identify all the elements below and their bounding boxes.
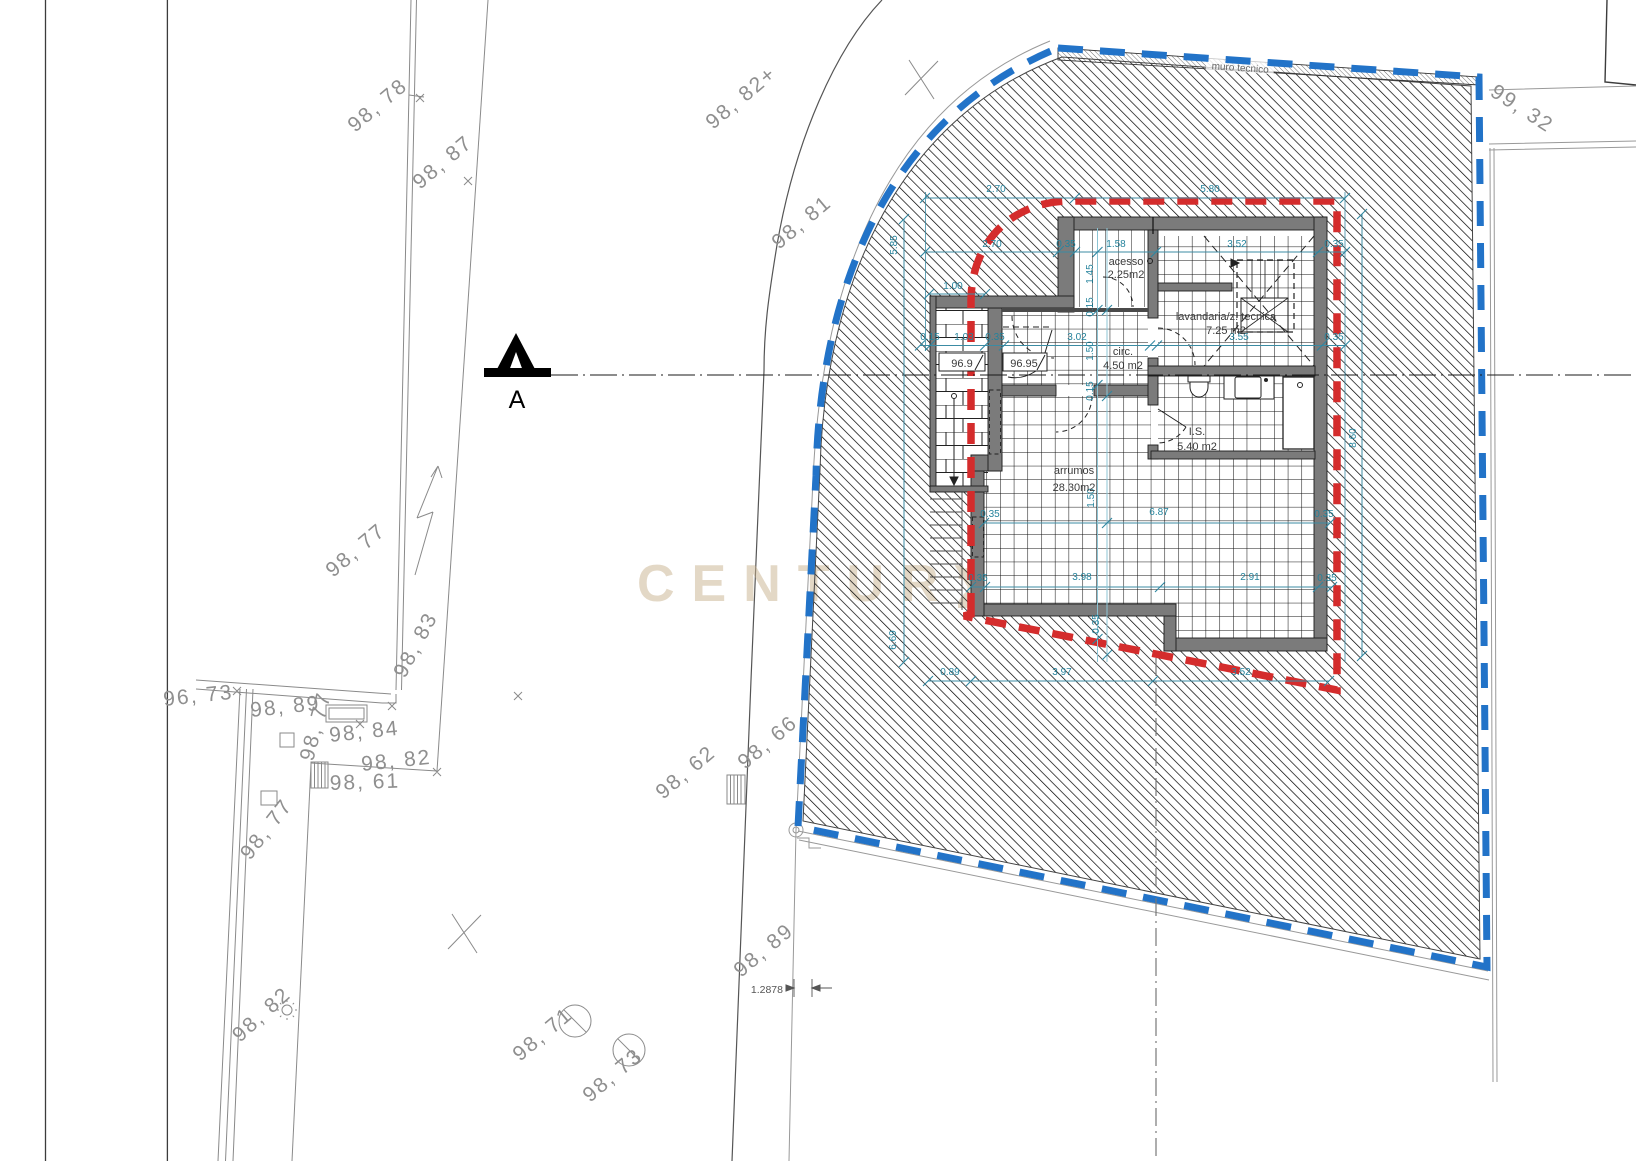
svg-text:0.15: 0.15: [920, 332, 940, 343]
svg-text:0.35: 0.35: [1056, 239, 1076, 250]
svg-text:1.00: 1.00: [943, 281, 963, 292]
svg-text:0.35: 0.35: [985, 332, 1005, 343]
svg-text:arrumos: arrumos: [1054, 465, 1095, 477]
svg-text:5.80: 5.80: [1200, 184, 1220, 195]
svg-text:0.35: 0.35: [968, 573, 988, 584]
svg-text:0.35: 0.35: [1324, 332, 1344, 343]
svg-text:0.35: 0.35: [1314, 509, 1334, 520]
svg-text:3.52: 3.52: [1231, 667, 1251, 678]
svg-text:28.30m2: 28.30m2: [1053, 482, 1096, 494]
svg-text:3.52: 3.52: [1227, 239, 1247, 250]
svg-text:acesso: acesso: [1109, 256, 1144, 268]
svg-text:1.45: 1.45: [1085, 264, 1096, 284]
svg-text:2.70: 2.70: [986, 184, 1006, 195]
svg-text:0.15: 0.15: [1085, 297, 1096, 317]
svg-text:circ.: circ.: [1113, 346, 1133, 358]
svg-text:0.89: 0.89: [940, 667, 960, 678]
svg-text:5.40 m2: 5.40 m2: [1177, 441, 1217, 453]
svg-text:0.35: 0.35: [1091, 614, 1102, 634]
svg-text:2.70: 2.70: [982, 239, 1002, 250]
svg-text:3.98: 3.98: [1072, 572, 1092, 583]
svg-text:6.69: 6.69: [888, 630, 899, 650]
svg-text:2.91: 2.91: [1240, 572, 1260, 583]
svg-text:8.60: 8.60: [1348, 428, 1359, 448]
svg-text:1.03: 1.03: [954, 332, 974, 343]
svg-text:4.50 m2: 4.50 m2: [1103, 360, 1143, 372]
svg-text:5.85: 5.85: [889, 235, 900, 255]
svg-text:6.87: 6.87: [1149, 507, 1169, 518]
svg-text:1.50: 1.50: [1085, 341, 1096, 361]
svg-text:I.S.: I.S.: [1189, 426, 1206, 438]
svg-text:1.2878: 1.2878: [751, 984, 783, 996]
svg-text:0.35: 0.35: [1317, 573, 1337, 584]
svg-text:lavandaria/z. tecnica: lavandaria/z. tecnica: [1176, 311, 1277, 323]
svg-text:0.35: 0.35: [1324, 239, 1344, 250]
svg-text:7.25 m2: 7.25 m2: [1206, 325, 1246, 337]
svg-text:0.15: 0.15: [1085, 381, 1096, 401]
svg-text:1.58: 1.58: [1106, 239, 1126, 250]
svg-text:96.9: 96.9: [951, 358, 972, 370]
svg-text:2.25m2: 2.25m2: [1108, 269, 1145, 281]
svg-text:96.95: 96.95: [1010, 358, 1038, 370]
svg-text:3.97: 3.97: [1052, 667, 1072, 678]
svg-text:98, 61: 98, 61: [329, 770, 400, 795]
svg-text:0.35: 0.35: [980, 509, 1000, 520]
svg-text:A: A: [509, 386, 526, 414]
